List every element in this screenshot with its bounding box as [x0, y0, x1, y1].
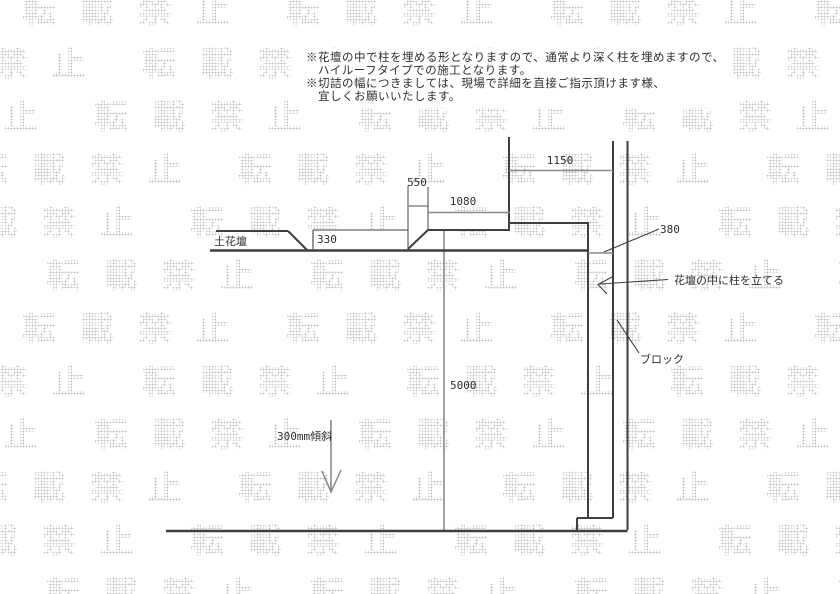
soil-slope-right: [408, 230, 428, 249]
soil-slope-left: [288, 231, 307, 250]
dimension-5000: 5000: [450, 379, 477, 392]
beam-box-mask: [428, 212, 510, 230]
label-block: ブロック: [640, 352, 684, 366]
note-line-2: ハイルーフタイプでの施工となります。: [306, 65, 725, 78]
label-pillar-note: 花壇の中に柱を立てる: [674, 273, 784, 287]
label-soil-bed: 土花壇: [214, 234, 247, 248]
dimension-330: 330: [317, 233, 337, 246]
note-line-1: ※花壇の中で柱を埋める形となりますので、通常より深く柱を埋めますので、: [306, 52, 725, 65]
drawing-page: 転載禁止転載禁止転載禁止転載禁止転載禁止転載禁止転載禁止転載禁止転載禁止転載禁止…: [0, 0, 840, 594]
construction-notes: ※花壇の中で柱を埋める形となりますので、通常より深く柱を埋めますので、 ハイルー…: [300, 48, 733, 108]
dimension-380: 380: [660, 223, 680, 236]
dimension-550: 550: [407, 176, 427, 189]
dimension-1080: 1080: [450, 195, 477, 208]
note-line-4: 宜しくお願いいたします。: [306, 91, 725, 104]
dimension-1150: 1150: [547, 154, 574, 167]
dimension-slope: 300mm傾斜: [277, 429, 332, 443]
note-line-3: ※切詰の幅につきましては、現場で詳細を直接ご指示頂けます様、: [306, 78, 725, 91]
left-arrow-icon: [598, 277, 668, 294]
